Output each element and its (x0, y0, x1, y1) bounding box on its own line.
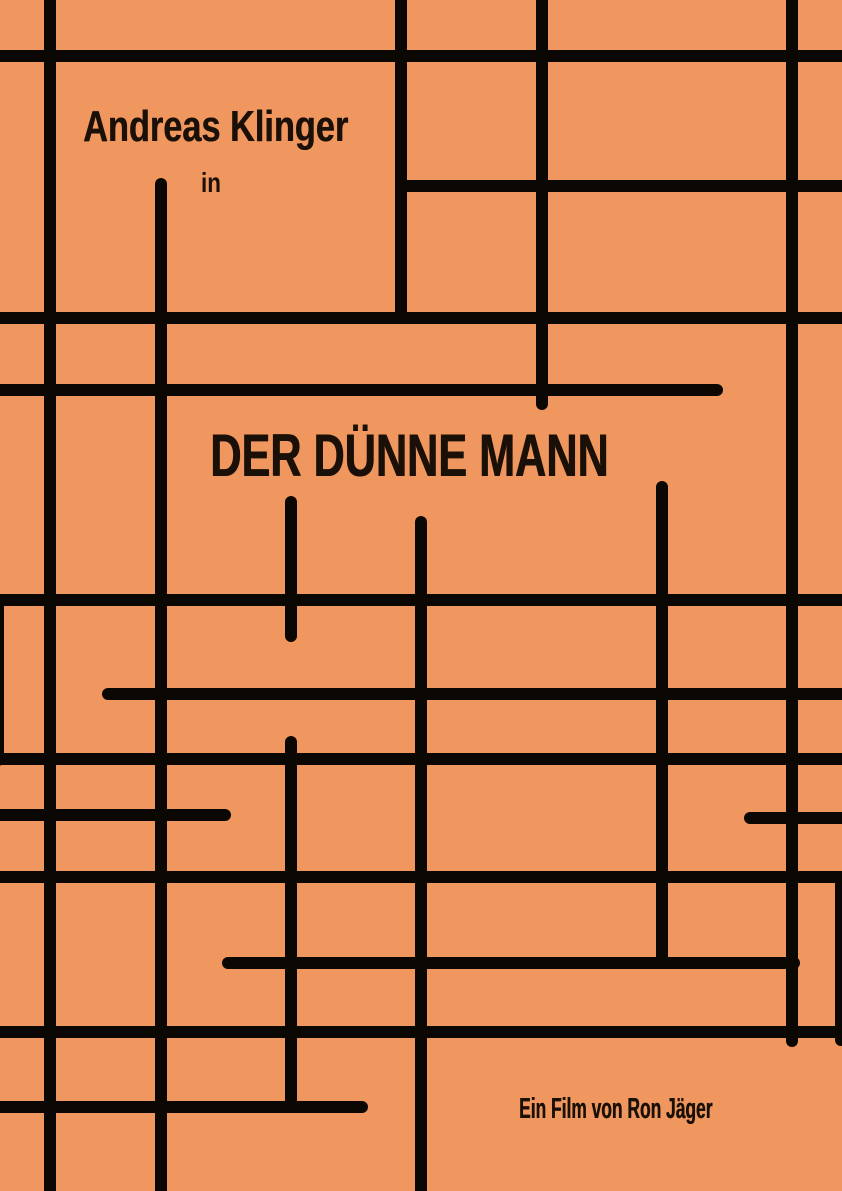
grid-line-horizontal (222, 957, 800, 969)
grid-line-vertical (656, 481, 668, 969)
connector-word: in (201, 169, 221, 197)
actor-name: Andreas Klinger (83, 105, 348, 149)
movie-poster: Andreas Klinger in DER DÜNNE MANN Ein Fi… (0, 0, 842, 1191)
grid-line-horizontal (0, 809, 231, 821)
grid-line-horizontal (0, 50, 842, 62)
grid-line-vertical (536, 0, 548, 410)
credit-line: Ein Film von Ron Jäger (519, 1095, 712, 1124)
film-title: DER DÜNNE MANN (210, 426, 608, 486)
grid-line-vertical (285, 736, 297, 1113)
grid-line-vertical (285, 496, 297, 642)
grid-line-vertical (395, 0, 407, 318)
grid-line-vertical (44, 0, 56, 1191)
grid-line-vertical (415, 516, 427, 1191)
grid-line-horizontal (0, 384, 723, 396)
grid-line-horizontal (0, 312, 842, 324)
grid-line-horizontal (102, 688, 842, 700)
grid-line-vertical (155, 178, 167, 1191)
grid-line-vertical (835, 871, 842, 1046)
grid-line-vertical (0, 598, 4, 766)
grid-line-vertical (786, 0, 798, 1047)
grid-line-horizontal (399, 180, 842, 192)
